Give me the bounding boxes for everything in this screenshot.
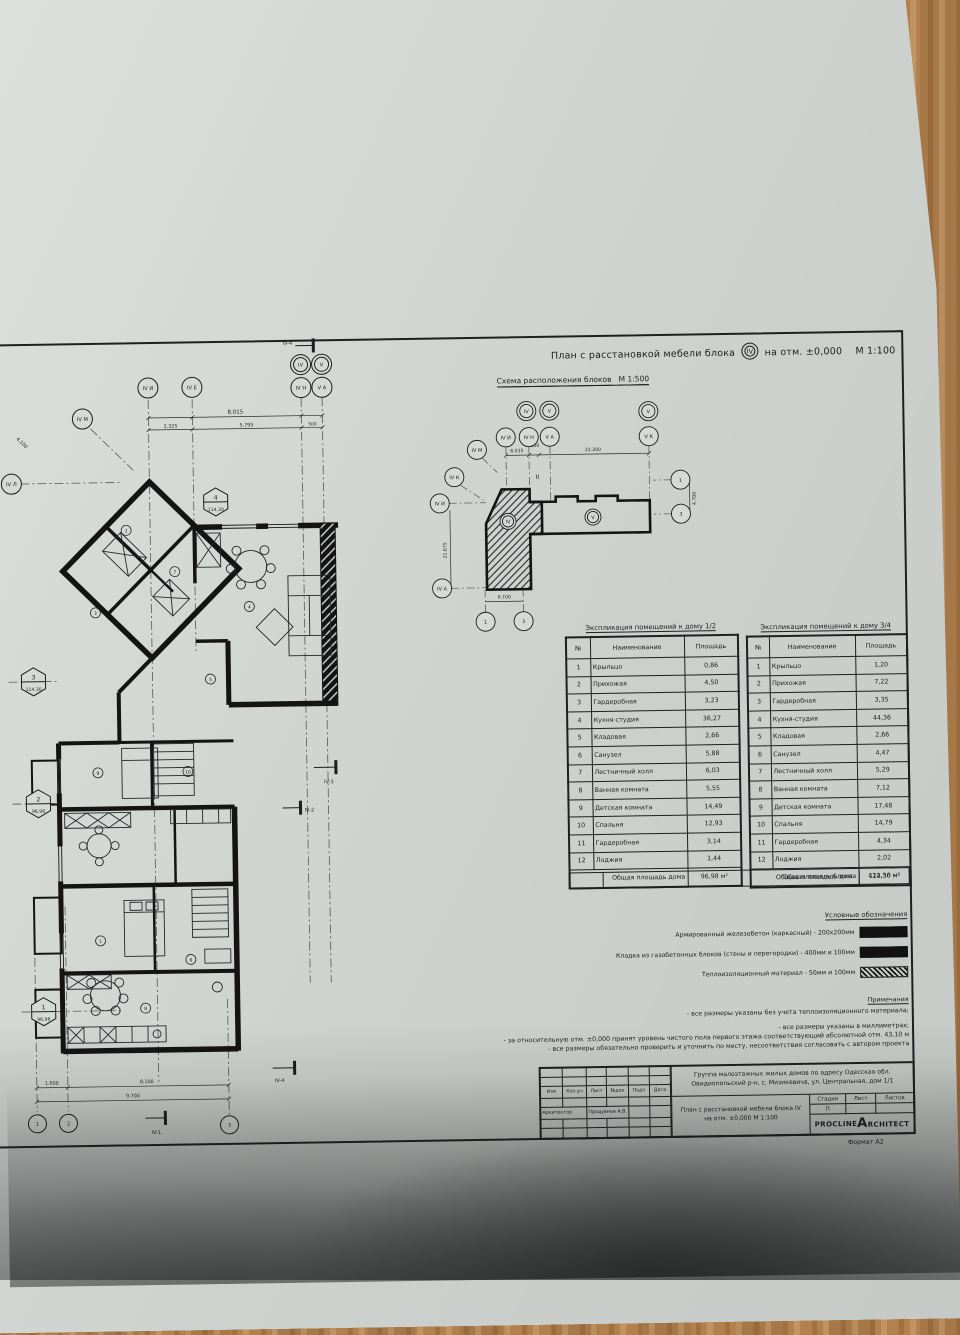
svg-text:9.700: 9.700	[498, 594, 511, 600]
table-cell: 7,22	[855, 673, 907, 691]
table-cell: 10	[750, 816, 772, 834]
svg-text:3: 3	[94, 611, 97, 617]
svg-text:IV: IV	[298, 363, 304, 369]
svg-text:IV Н: IV Н	[524, 435, 535, 441]
stamp-drawing-title: План с расстановкой мебели блока IV на о…	[672, 1095, 811, 1136]
table-cell: Ванная комната	[771, 780, 857, 799]
svg-text:IV М: IV М	[77, 417, 88, 423]
svg-text:1: 1	[679, 478, 682, 484]
table-cell: 4,47	[857, 744, 909, 762]
floor-plan: 8.015 2.325 5.795 500 4.100 1.600 8.100 …	[0, 337, 364, 1154]
svg-text:4.700: 4.700	[692, 492, 698, 505]
legend-swatch-concrete	[859, 926, 907, 938]
table-cell: 3,35	[856, 691, 908, 709]
company-logo: PROCLINE ARCHITECT	[810, 1113, 913, 1134]
title-block: Изм Кол.уч Лист №док Подп Дата Архитекто…	[539, 1061, 916, 1140]
table-cell: Гардеробная	[770, 692, 856, 711]
table-cell: 0,86	[684, 656, 738, 674]
table-cell: 2,02	[858, 849, 910, 867]
table-cell: Гардеробная	[772, 832, 858, 851]
stamp-role: Архитектор	[541, 1107, 587, 1120]
house-area-tag-4: 4 114,30	[203, 488, 227, 516]
table-cell: 10	[569, 817, 593, 835]
block-location-scheme: 6.015 500 22.200 21.675 9.700 4.700 II I…	[426, 386, 720, 636]
svg-text:3: 3	[522, 619, 525, 625]
table-cell: 2,66	[685, 727, 739, 745]
title-block-revision-grid: Изм Кол.уч Лист №док Подп Дата Архитекто…	[541, 1067, 673, 1138]
table-header-row: № Наименование Площадь	[747, 634, 907, 658]
project-address: Группа малоэтажных жилых домов по адресу…	[672, 1063, 913, 1097]
house-area-tag-3: 3 114,30	[21, 668, 45, 696]
table-cell: Спальня	[593, 815, 687, 834]
svg-text:1: 1	[99, 939, 102, 945]
svg-text:2: 2	[36, 796, 40, 803]
legend-swatch-masonry	[860, 946, 908, 958]
table-cell: 2,66	[856, 726, 908, 744]
table-cell: Крыльцо	[769, 656, 855, 675]
table-cell: Кухня-студия	[770, 709, 856, 728]
table-cell: 3,23	[685, 691, 739, 709]
svg-text:10: 10	[185, 769, 191, 775]
svg-text:1: 1	[484, 620, 487, 626]
table-cell: 12	[750, 851, 772, 869]
sheet-title-elevation: на отм. ±0,000	[765, 346, 843, 358]
table-cell: Детская комната	[592, 798, 686, 817]
table-header-row: № Наименование Площадь	[566, 635, 738, 659]
table-cell: 8	[749, 781, 771, 799]
table-cell: 1	[747, 658, 769, 676]
svg-text:V К: V К	[644, 434, 653, 440]
svg-text:5: 5	[209, 677, 212, 683]
svg-text:6.015: 6.015	[510, 448, 523, 454]
table-cell: 44,36	[856, 708, 908, 726]
table-cell: Ванная комната	[592, 780, 686, 799]
table-cell: Детская комната	[771, 797, 857, 816]
table-cell: 1,20	[855, 656, 907, 674]
table-cell: 11	[569, 835, 593, 853]
svg-text:6: 6	[189, 957, 192, 963]
table-cell: 5,88	[686, 744, 740, 762]
svg-text:4: 4	[248, 604, 251, 610]
table-cell: Гардеробная	[591, 692, 685, 711]
explication-table-right: № Наименование Площадь 1Крыльцо1,202Прих…	[746, 633, 912, 888]
table-cell: 11	[750, 834, 772, 852]
table-cell: Кухня-студия	[591, 710, 685, 729]
table-cell: Санузел	[592, 745, 686, 764]
svg-text:7: 7	[173, 570, 176, 576]
svg-text:IV М: IV М	[471, 448, 482, 454]
svg-text:1: 1	[36, 1122, 39, 1128]
photo-of-blueprint: { "sheet": { "top_title": "План с расста…	[0, 0, 960, 1280]
svg-text:8: 8	[144, 1006, 147, 1012]
table-cell: Санузел	[771, 744, 857, 763]
svg-text:9.700: 9.700	[126, 1093, 140, 1099]
table-cell: 7	[568, 764, 592, 782]
svg-text:1: 1	[42, 1004, 46, 1011]
svg-text:V А: V А	[318, 385, 327, 391]
svg-text:IV: IV	[524, 409, 530, 415]
table-cell: Лоджия	[772, 850, 858, 869]
block-total-value: 422,56 м²	[859, 868, 909, 884]
explication-table-left: № Наименование Площадь 1Крыльцо0,862Прих…	[565, 634, 743, 889]
svg-text:2.325: 2.325	[164, 424, 178, 430]
svg-text:IV И: IV И	[435, 501, 446, 507]
svg-text:1.600: 1.600	[45, 1081, 59, 1087]
table-cell: 4	[748, 711, 770, 729]
scheme-iv-label: IV	[506, 519, 512, 525]
scheme-block-iv	[486, 489, 544, 590]
table-cell: 9	[568, 799, 592, 817]
scheme-axis-lines	[448, 444, 674, 613]
table-cell: 14,49	[686, 797, 740, 815]
explication-left-title: Экспликация помещений к дому 1/2	[565, 622, 737, 633]
svg-text:V: V	[320, 362, 324, 368]
svg-text:5.795: 5.795	[240, 422, 254, 428]
svg-text:IV-4: IV-4	[275, 1078, 285, 1084]
table-cell: 1	[566, 659, 590, 677]
table-cell: 1,44	[687, 850, 741, 868]
table-cell: 5	[567, 729, 591, 747]
svg-text:3: 3	[31, 674, 35, 681]
format-note: Формат А2	[848, 1139, 884, 1147]
stamp-name: Продувнов А.В.	[587, 1107, 629, 1120]
svg-text:96,98: 96,98	[32, 809, 45, 815]
table-cell: 5,55	[686, 779, 740, 797]
table-cell: 3	[748, 693, 770, 711]
table-cell: 12	[569, 852, 593, 870]
table-cell: 2	[566, 676, 590, 694]
svg-text:4: 4	[214, 494, 218, 501]
table-cell: 7	[749, 763, 771, 781]
svg-text:8.015: 8.015	[227, 410, 243, 416]
table-cell: Кладовая	[591, 728, 685, 747]
plan-dimension-lines	[24, 413, 335, 1104]
table-cell: Прихожая	[590, 675, 684, 694]
stage-grid: Стадия Лист Листов П	[810, 1093, 913, 1115]
svg-text:3: 3	[228, 1123, 231, 1129]
svg-text:9: 9	[96, 771, 99, 777]
table-cell: 6	[749, 746, 771, 764]
svg-text:21.675: 21.675	[442, 542, 448, 558]
svg-text:IV И: IV И	[501, 435, 512, 441]
plan-room-marker-labels: 7 2 3 4 5 9 10 1 6 8	[93, 526, 258, 1012]
notes-block: Примечания - все размеры указаны без уче…	[476, 995, 910, 1055]
table-cell: 2	[748, 675, 770, 693]
svg-text:IV-2: IV-2	[305, 807, 315, 813]
block-total-empty-cell	[570, 873, 604, 889]
svg-text:96,98: 96,98	[37, 1017, 50, 1023]
svg-text:V А: V А	[545, 435, 554, 441]
svg-text:IV И: IV И	[143, 386, 154, 392]
block-iv-axis-circle: IV	[741, 342, 758, 359]
table-cell: 3	[567, 694, 591, 712]
svg-text:500: 500	[308, 421, 317, 427]
svg-text:8.100: 8.100	[140, 1079, 154, 1085]
svg-text:II: II	[536, 474, 540, 481]
table-cell: Прихожая	[769, 674, 855, 693]
table-cell: 7,12	[857, 779, 909, 797]
svg-text:IV Л: IV Л	[6, 482, 17, 488]
svg-text:IV А: IV А	[437, 586, 448, 592]
table-cell: 14,79	[858, 814, 910, 832]
table-cell: 6	[568, 747, 592, 765]
table-cell: Лестничный холл	[771, 762, 857, 781]
table-cell: 6,03	[686, 762, 740, 780]
legend-swatch-insulation	[860, 966, 908, 978]
svg-text:114,30: 114,30	[208, 507, 224, 513]
table-cell: Гардеробная	[593, 833, 687, 852]
table-cell: Спальня	[772, 815, 858, 834]
table-cell: 17,48	[857, 796, 909, 814]
svg-text:22.200: 22.200	[585, 447, 601, 453]
table-cell: 12,93	[687, 815, 741, 833]
table-cell: 36,27	[685, 709, 739, 727]
blueprint-paper-sheet: План с расстановкой мебели блока IV на о…	[0, 0, 960, 1334]
house-area-tag-2: 2 96,98	[26, 790, 50, 818]
table-cell: 3,14	[687, 832, 741, 850]
table-cell: 4	[567, 711, 591, 729]
table-cell: 8	[568, 782, 592, 800]
table-cell: 5	[748, 728, 770, 746]
table-cell: 4,34	[858, 832, 910, 850]
table-cell: 5,29	[857, 761, 909, 779]
table-cell: 4,50	[684, 674, 738, 692]
table-cell: Лестничный холл	[592, 763, 686, 782]
sheet-title-text: План с расстановкой мебели блока	[551, 348, 735, 362]
svg-text:IV К: IV К	[449, 475, 460, 481]
scheme-dim-labels: 6.015 500 22.200 21.675 9.700 4.700 II	[441, 440, 699, 601]
svg-text:IV-3: IV-3	[324, 779, 334, 785]
svg-text:IV Е: IV Е	[187, 385, 197, 391]
svg-text:114,30: 114,30	[26, 687, 42, 693]
svg-text:3: 3	[679, 512, 682, 518]
table-cell: Кладовая	[770, 727, 856, 746]
svg-text:2: 2	[67, 1121, 70, 1127]
table-cell: Лоджия	[593, 851, 687, 870]
stage-value: П	[810, 1104, 846, 1115]
svg-text:4.100: 4.100	[14, 436, 28, 450]
svg-text:IV-1: IV-1	[152, 1130, 162, 1136]
explication-right-title: Экспликация помещений к дому 3/4	[746, 621, 906, 632]
block-total-label: Общая площадь блока	[604, 869, 859, 888]
svg-text:IV Н: IV Н	[296, 386, 307, 392]
table-cell: Крыльцо	[590, 657, 684, 676]
svg-text:2: 2	[125, 528, 128, 534]
sheet-title-scale: М 1:100	[855, 345, 895, 357]
svg-text:IV-4: IV-4	[283, 341, 293, 347]
table-cell: 9	[749, 799, 771, 817]
